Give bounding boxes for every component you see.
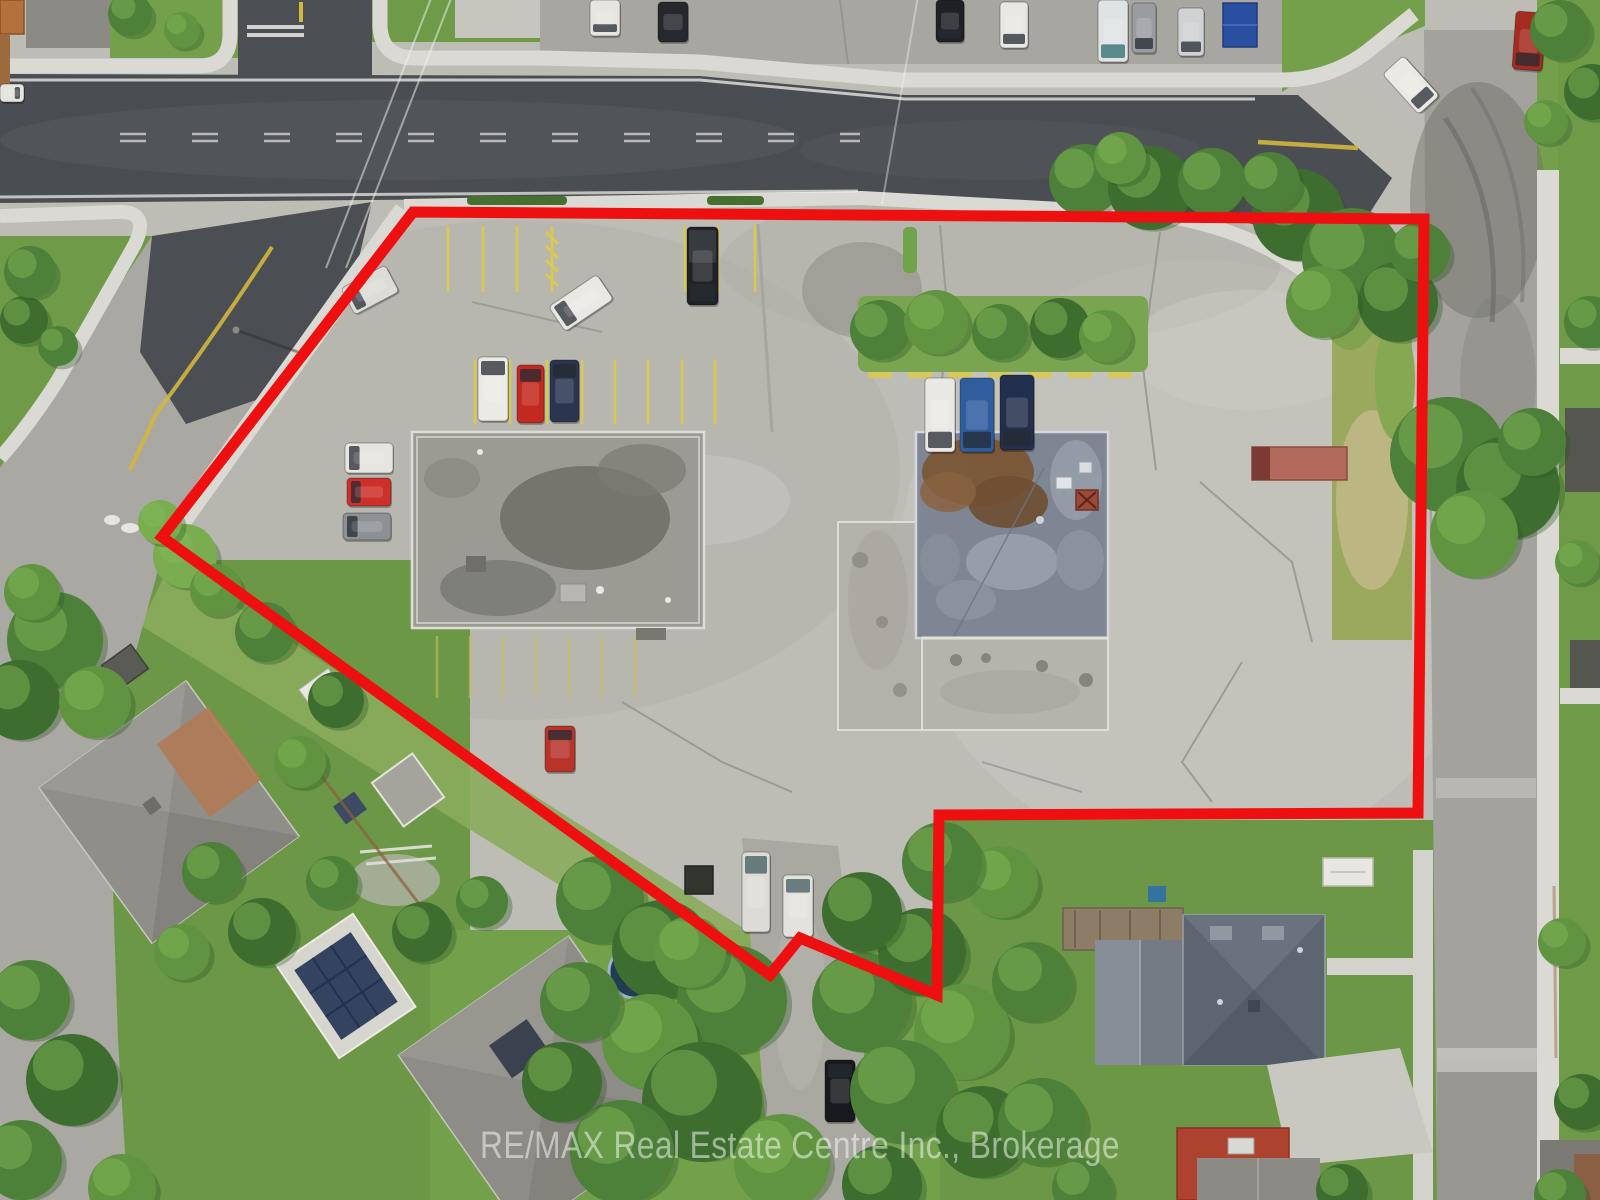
building-west-entry: [636, 628, 666, 640]
scene-root: [0, 0, 1600, 1200]
wing-s-spot-2: [981, 653, 991, 663]
building-west-unit: [466, 556, 486, 572]
debris-white-1: [104, 515, 120, 525]
roof-rust-3: [920, 472, 976, 512]
street-top-yellow-dash: [299, 2, 303, 22]
curb-stop-3: [948, 372, 972, 378]
hedge-frontage-2: [707, 196, 764, 205]
building-center-wing-spot-2: [876, 616, 888, 628]
brokerage-watermark: RE/MAX Real Estate Centre Inc., Brokerag…: [480, 1125, 1120, 1167]
crosswalk-bar-2: [247, 33, 304, 37]
parked-car-black-suv: [936, 0, 965, 44]
car-blue-center: [960, 378, 995, 454]
building-center-wing-mottle: [848, 530, 908, 670]
building-orange-tl: [0, 0, 24, 34]
van-white-drive-1: [742, 852, 771, 934]
building-center-wing-spot-3: [893, 683, 907, 697]
car-red-left: [347, 478, 392, 508]
wing-s-mottle: [940, 670, 1080, 714]
parked-car-black-top: [658, 2, 689, 44]
driveway-dark-right-2: [1570, 640, 1600, 688]
walkway-right-2: [1560, 688, 1600, 704]
building-west-stain-4: [424, 458, 480, 498]
curb-stop-2: [908, 372, 932, 378]
house-br-gable-w: [1095, 940, 1140, 1065]
driveway-tl: [26, 0, 110, 48]
fence-brown-right: [1554, 886, 1556, 1058]
driveway-apron-3: [1437, 1048, 1537, 1072]
curb-stop-7: [1108, 372, 1132, 378]
car-red-row2: [517, 365, 545, 425]
house-br-gable-e: [1140, 940, 1185, 1065]
roof-blotch-1: [966, 534, 1058, 590]
bin-blue-br: [1148, 886, 1166, 902]
roof-vent-round: [1036, 516, 1044, 524]
parked-car-white-1: [1000, 2, 1029, 50]
wing-s-spot-4: [1079, 673, 1093, 687]
building-west-vent-2: [477, 449, 483, 455]
parked-car-gray: [1132, 3, 1157, 55]
street-top: [238, 0, 372, 78]
house-br-dormer-1: [1210, 926, 1232, 940]
wing-s-spot-3: [1036, 660, 1048, 672]
parked-van-teal: [1098, 0, 1129, 64]
van-white-drive-2: [783, 875, 814, 939]
house-br-dormer-2: [1262, 926, 1284, 940]
house-redroof-skylight: [1228, 1138, 1254, 1154]
pickup-white-left: [345, 443, 394, 475]
concrete-pad-top: [455, 0, 540, 38]
car-white-row2: [478, 357, 509, 423]
grass-right-column: [1558, 0, 1600, 1200]
roof-unit-white-1: [1056, 477, 1072, 489]
building-west-hvac: [560, 584, 586, 602]
roof-blotch-4: [1056, 530, 1104, 590]
roof-unit-white-2: [1079, 462, 1092, 473]
roof-blotch-5: [920, 534, 960, 586]
utility-pole: [233, 327, 240, 334]
car-navy-row2: [550, 360, 580, 424]
car-red-lower-lot: [545, 726, 576, 774]
car-white-road-edge: [0, 84, 25, 104]
car-navy-center: [1000, 375, 1035, 452]
building-center-wing-spot-1: [852, 552, 868, 568]
crosswalk-bar-1: [247, 25, 304, 29]
parked-car-silver: [1178, 8, 1205, 58]
aerial-photo: RE/MAX Real Estate Centre Inc., Brokerag…: [0, 0, 1600, 1200]
car-gray-left: [343, 513, 392, 542]
debris-white-2: [121, 523, 139, 533]
hedge-frontage-1: [467, 196, 567, 205]
house-br-chimney: [1248, 1000, 1260, 1012]
parked-car-white-van-top: [590, 0, 621, 38]
building-west-vent-1: [596, 586, 604, 594]
house-br-vent-2: [1217, 999, 1223, 1005]
building-west-stain-2: [440, 560, 556, 616]
building-west-vent-3: [665, 597, 671, 603]
pickup-black: [687, 227, 719, 307]
house-br-vent-1: [1297, 947, 1303, 953]
street-bottom-shade: [1437, 1058, 1537, 1200]
building-west-stain-3: [598, 444, 686, 496]
wing-s-spot-1: [950, 654, 962, 666]
car-white-center: [925, 378, 956, 454]
weed-tuft: [903, 227, 917, 273]
bin-dark-drive: [685, 866, 713, 894]
shipping-container-end: [1252, 447, 1270, 480]
curb-stop-1: [868, 372, 892, 378]
aerial-photo-canvas: RE/MAX Real Estate Centre Inc., Brokerag…: [0, 0, 1600, 1200]
curb-stop-6: [1068, 372, 1092, 378]
driveway-apron-2: [1436, 778, 1536, 798]
walkway-house-br: [1327, 958, 1415, 975]
